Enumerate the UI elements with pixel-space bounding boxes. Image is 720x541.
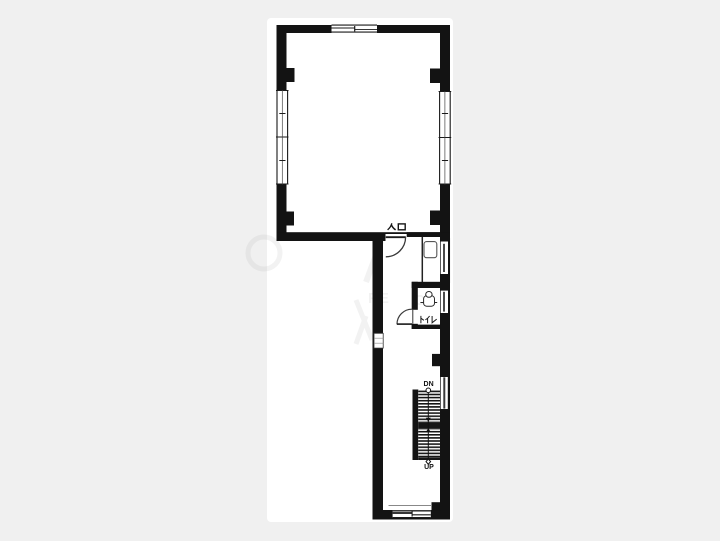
svg-text:DN: DN bbox=[424, 381, 434, 388]
svg-text:UP: UP bbox=[424, 464, 434, 471]
